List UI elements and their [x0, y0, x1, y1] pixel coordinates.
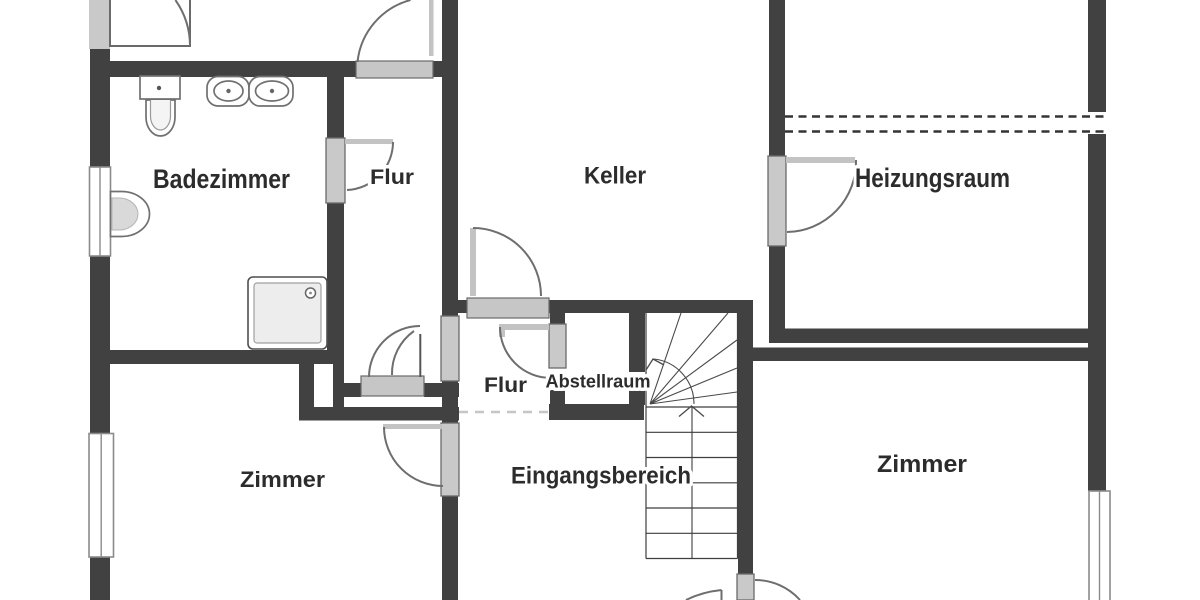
- svg-text:Heizungsraum: Heizungsraum: [855, 163, 1010, 193]
- svg-text:Badezimmer: Badezimmer: [153, 164, 290, 194]
- svg-text:Keller: Keller: [584, 163, 646, 190]
- svg-text:Zimmer: Zimmer: [240, 467, 325, 492]
- svg-text:Flur: Flur: [370, 165, 415, 189]
- svg-text:Flur: Flur: [484, 373, 528, 397]
- svg-text:Eingangsbereich: Eingangsbereich: [511, 463, 691, 490]
- svg-text:Abstellraum: Abstellraum: [546, 371, 651, 392]
- svg-text:Zimmer: Zimmer: [877, 451, 967, 478]
